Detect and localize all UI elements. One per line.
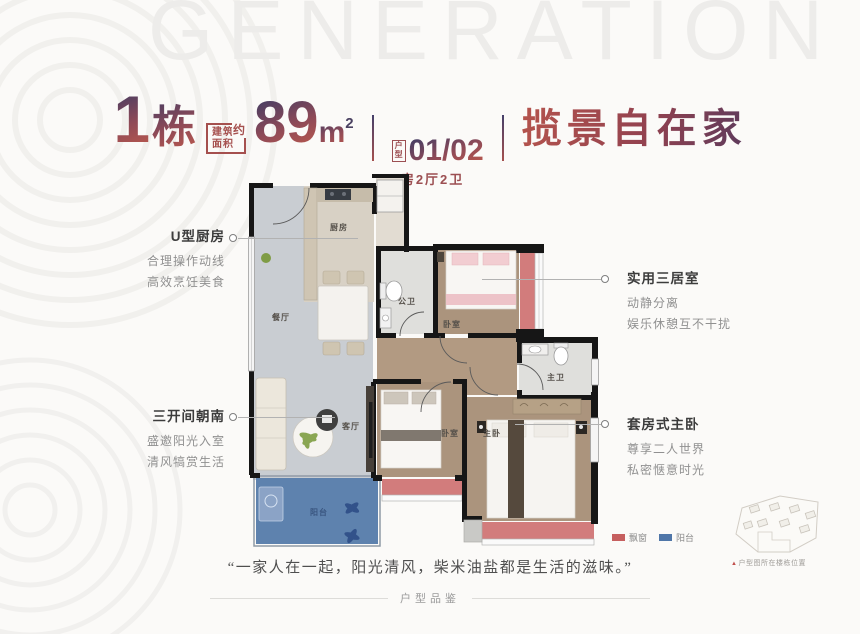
bedroom1-nightstand (437, 252, 444, 262)
master-bath-window (592, 359, 599, 385)
header-divider-1 (372, 115, 374, 161)
area-label-box: 建筑 面积 约 (206, 123, 246, 154)
annotation-title: U型厨房 (147, 226, 225, 247)
annotation-line: 合理操作动线 (147, 251, 225, 272)
annotation-three-rooms: 实用三居室 动静分离 娱乐休憩互不干扰 (627, 268, 731, 335)
annotation-title: 实用三居室 (627, 268, 731, 289)
ac-platform (464, 520, 482, 542)
kitchen-counter-left (304, 188, 317, 300)
balcony-swatch (659, 534, 672, 541)
annotation-line: 私密惬意时光 (627, 460, 705, 481)
bay-window-bedroom1 (520, 253, 535, 329)
annotation-line: 高效烹饪美食 (147, 272, 225, 293)
connector-dot-kitchen (229, 234, 237, 242)
bay-window-swatch (612, 534, 625, 541)
unit-box-char2: 型 (395, 151, 403, 160)
annotation-title: 套房式主卧 (627, 414, 705, 435)
annotation-line: 尊享二人世界 (627, 439, 705, 460)
stove (325, 189, 351, 200)
slogan: 揽景自在家 (522, 96, 747, 154)
tv (369, 402, 373, 458)
area-box-line1: 建筑 (212, 127, 234, 139)
connector-dot-living (229, 413, 237, 421)
poster-page: GENERATION 1 栋 建筑 面积 约 89 m 2 户 型 01/02 … (0, 0, 860, 634)
area-about: 约 (232, 121, 246, 138)
washer (259, 487, 283, 521)
label-public-bath: 公卫 (398, 297, 416, 306)
area-exponent: 2 (345, 115, 353, 132)
floorplan: 厨房 餐厅 公卫 卧室 主卫 客厅 卧室 主卧 阳台 (245, 165, 630, 565)
label-master-bath: 主卫 (547, 372, 565, 382)
annotation-suite-master: 套房式主卧 尊享二人世界 私密惬意时光 (627, 414, 705, 481)
generation-watermark: GENERATION (148, 0, 837, 79)
sofa (256, 378, 286, 470)
unit-numbers: 01/02 (409, 136, 484, 166)
annotation-title: 三开间朝南 (147, 406, 225, 427)
area-box-line2: 面积 (212, 139, 234, 151)
connector-kitchen (238, 238, 358, 239)
legend-balcony: 阳台 (659, 531, 694, 544)
area-unit: m (319, 116, 346, 150)
label-balcony: 阳台 (310, 507, 328, 517)
bay3-window-frame (482, 539, 594, 545)
footer: 户型品鉴 (0, 590, 860, 606)
footer-line-right (472, 598, 650, 599)
label-bedroom2: 卧室 (441, 428, 459, 438)
legend: 飘窗 阳台 (612, 531, 694, 544)
annotation-line: 盛邀阳光入室 (147, 431, 225, 452)
label-kitchen: 厨房 (330, 222, 348, 232)
master-wardrobe (513, 399, 581, 414)
annotation-line: 娱乐休憩互不干扰 (627, 314, 731, 335)
annotation-south-bays: 三开间朝南 盛邀阳光入室 清风犒赏生活 (147, 406, 225, 473)
label-dining: 餐厅 (271, 312, 290, 322)
area-value: 89 (254, 94, 319, 152)
connector-dot-bedroom (601, 275, 609, 283)
legend-bay-window: 飘窗 (612, 531, 647, 544)
label-master-bedroom: 主卧 (483, 428, 501, 438)
legend-bay-label: 飘窗 (629, 531, 647, 544)
label-living: 客厅 (341, 421, 360, 431)
unit-type-box: 户 型 (392, 140, 406, 162)
label-bedroom1: 卧室 (443, 319, 461, 329)
bay-window-bedroom2 (382, 479, 462, 495)
plant-small (261, 253, 271, 263)
bay2-window-frame (382, 495, 462, 501)
dining-table (318, 286, 368, 340)
quote: “一家人在一起，阳光清风，柴米油盐都是生活的滋味。” (0, 556, 860, 577)
connector-dot-master (601, 420, 609, 428)
annotation-kitchen: U型厨房 合理操作动线 高效烹饪美食 (147, 226, 225, 293)
annotation-line: 动静分离 (627, 293, 731, 314)
block-number: 1 (113, 86, 150, 152)
annotation-line: 清风犒赏生活 (147, 452, 225, 473)
connector-master (515, 424, 601, 425)
connector-bedroom (482, 279, 601, 280)
block-suffix: 栋 (152, 91, 196, 155)
connector-living (238, 417, 335, 418)
footer-line-left (210, 598, 388, 599)
footer-label: 户型品鉴 (400, 590, 460, 606)
header-divider-2 (502, 115, 504, 161)
bay-window-master (482, 522, 594, 539)
siteplan-map (728, 494, 824, 556)
master-toilet (554, 347, 568, 365)
legend-balcony-label: 阳台 (676, 531, 694, 544)
